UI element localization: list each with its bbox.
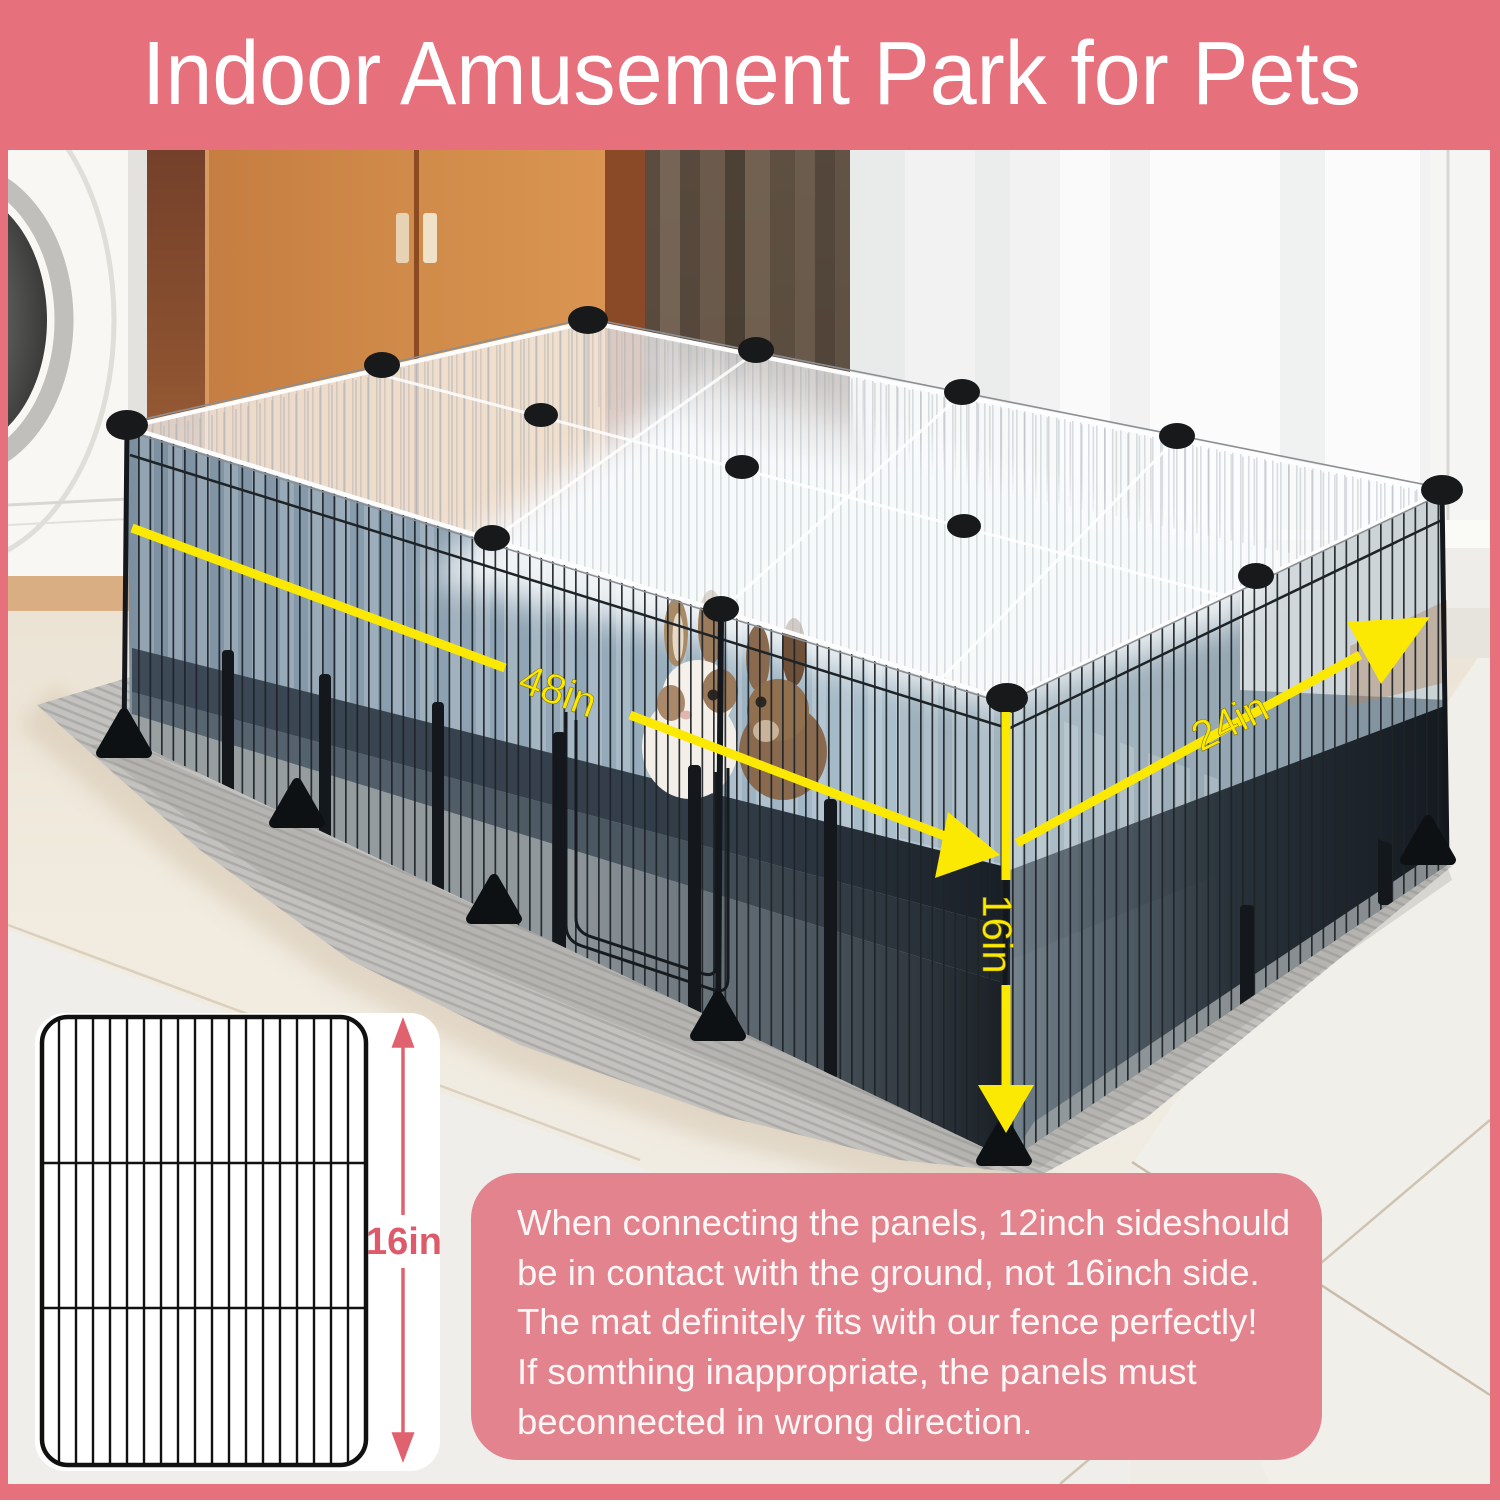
- svg-text:beconnected in wrong direction: beconnected in wrong direction.: [517, 1401, 1032, 1442]
- svg-text:When connecting the panels, 12: When connecting the panels, 12inch sides…: [517, 1202, 1290, 1243]
- svg-text:Indoor Amusement Park for Pets: Indoor Amusement Park for Pets: [142, 24, 1361, 124]
- svg-text:The mat definitely fits with o: The mat definitely fits with our fence p…: [517, 1301, 1257, 1342]
- svg-text:If somthing inappropriate, the: If somthing inappropriate, the panels mu…: [517, 1351, 1197, 1392]
- svg-text:16in: 16in: [366, 1221, 442, 1263]
- svg-text:be in contact with the ground,: be in contact with the ground, not 16inc…: [517, 1252, 1260, 1293]
- svg-text:16in: 16in: [974, 894, 1021, 973]
